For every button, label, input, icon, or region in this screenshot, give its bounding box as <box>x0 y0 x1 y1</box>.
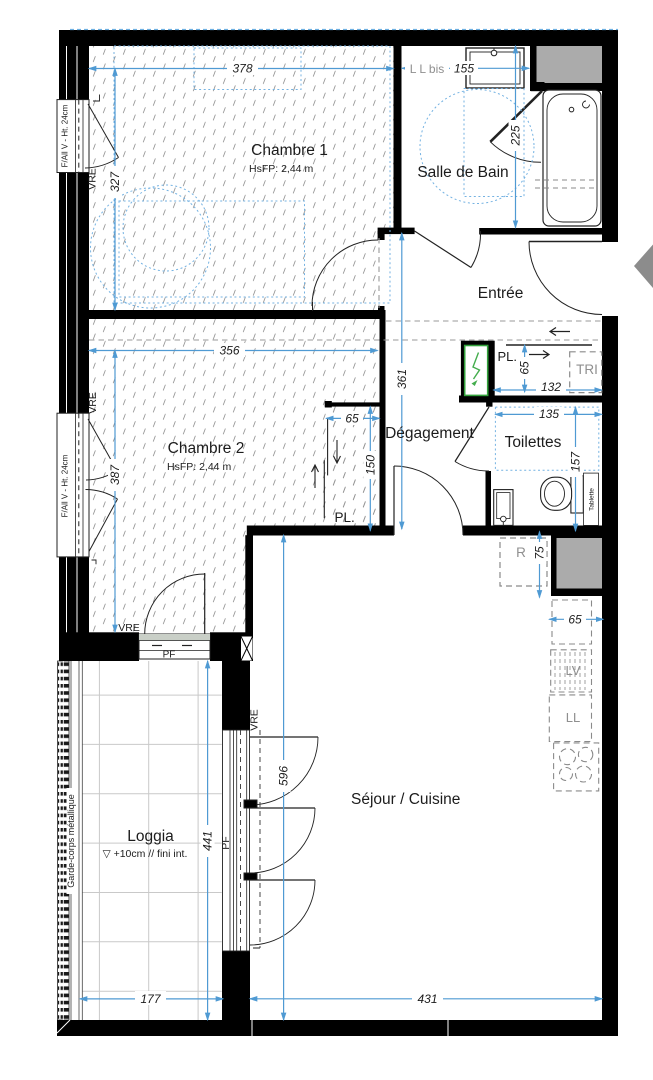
svg-text:157: 157 <box>569 451 583 472</box>
svg-text:PL.: PL. <box>498 349 518 364</box>
svg-text:F/All V - Ht. 24cm: F/All V - Ht. 24cm <box>60 104 69 167</box>
svg-text:LL: LL <box>566 710 580 725</box>
svg-text:132: 132 <box>541 380 561 394</box>
svg-text:Tablette: Tablette <box>589 488 596 511</box>
svg-text:VRE: VRE <box>87 168 99 190</box>
svg-text:378: 378 <box>232 62 252 76</box>
svg-text:Chambre 1: Chambre 1 <box>251 142 328 159</box>
svg-text:177: 177 <box>140 992 161 1006</box>
svg-text:356: 356 <box>219 344 239 358</box>
svg-text:F/All V - Ht. 24cm: F/All V - Ht. 24cm <box>60 454 69 517</box>
svg-text:VRE: VRE <box>87 392 99 414</box>
svg-text:PL.: PL. <box>335 510 355 525</box>
svg-text:PF: PF <box>163 650 176 661</box>
svg-text:Garde-corps métallique: Garde-corps métallique <box>66 794 76 888</box>
svg-text:HsFP: 2,44 m: HsFP: 2,44 m <box>167 461 231 473</box>
svg-text:Salle de Bain: Salle de Bain <box>417 164 508 181</box>
svg-text:VRE: VRE <box>249 709 261 731</box>
svg-text:155: 155 <box>454 61 474 75</box>
svg-text:Entrée: Entrée <box>478 285 524 302</box>
svg-text:65: 65 <box>518 361 532 375</box>
svg-text:Loggia: Loggia <box>127 828 174 845</box>
svg-text:Séjour / Cuisine: Séjour / Cuisine <box>351 791 460 808</box>
svg-text:75: 75 <box>533 546 547 560</box>
svg-text:135: 135 <box>539 407 559 421</box>
svg-text:HsFP: 2,44 m: HsFP: 2,44 m <box>249 163 313 175</box>
svg-text:596: 596 <box>277 766 291 786</box>
svg-text:65: 65 <box>568 612 582 626</box>
svg-text:150: 150 <box>363 455 377 475</box>
svg-text:65: 65 <box>345 411 359 425</box>
svg-text:361: 361 <box>395 369 409 389</box>
svg-text:VRE: VRE <box>118 622 140 634</box>
svg-text:▽ +10cm // fini int.: ▽ +10cm // fini int. <box>103 848 188 860</box>
svg-text:R: R <box>516 545 526 560</box>
svg-text:TRI: TRI <box>576 362 598 377</box>
svg-text:327: 327 <box>108 171 122 192</box>
svg-text:441: 441 <box>201 831 215 851</box>
svg-text:Toilettes: Toilettes <box>505 434 562 451</box>
svg-text:PF: PF <box>220 836 232 849</box>
svg-text:Chambre 2: Chambre 2 <box>168 440 245 457</box>
svg-text:431: 431 <box>417 992 437 1006</box>
svg-text:Dégagement: Dégagement <box>385 425 474 442</box>
svg-text:387: 387 <box>108 464 122 485</box>
svg-text:LV: LV <box>566 663 581 678</box>
svg-text:L L bis: L L bis <box>410 62 444 76</box>
svg-text:225: 225 <box>509 125 523 146</box>
